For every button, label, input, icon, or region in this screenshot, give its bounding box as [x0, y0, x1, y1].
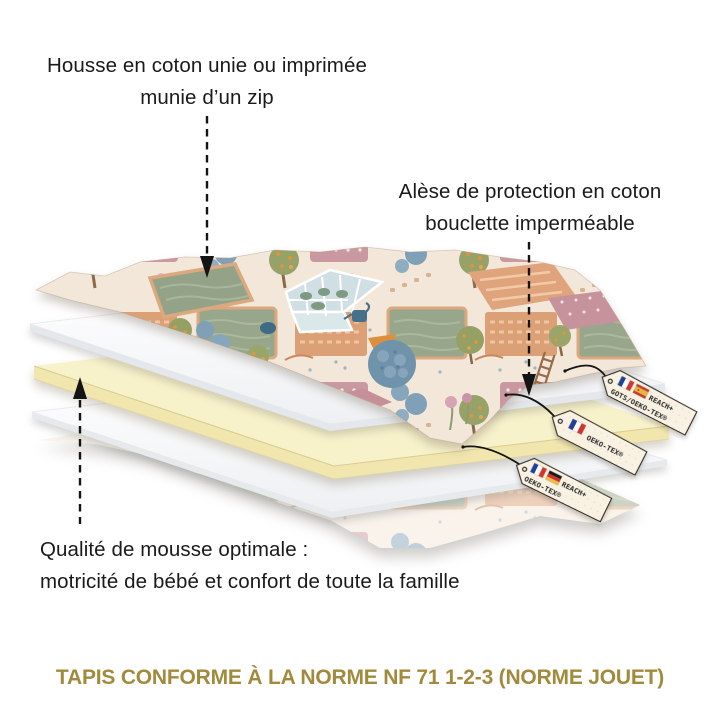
- infographic: REACH+ GOTS/OEKO-TEX® OEKO-TEX®: [0, 0, 720, 720]
- label-housse: Housse en coton unie ou imprimée munie d…: [27, 50, 387, 114]
- label-mousse: Qualité de mousse optimale : motricité d…: [40, 534, 520, 598]
- arrow-mousse: [73, 377, 87, 524]
- label-housse-line-1: Housse en coton unie ou imprimée: [27, 50, 387, 82]
- label-mousse-line-2: motricité de bébé et confort de toute la…: [40, 566, 520, 598]
- arrow-housse: [200, 116, 214, 278]
- label-alese: Alèse de protection en coton bouclette i…: [375, 176, 685, 240]
- label-housse-line-2: munie d’un zip: [27, 82, 387, 114]
- label-alese-line-1: Alèse de protection en coton: [375, 176, 685, 208]
- norm-compliance-title: TAPIS CONFORME À LA NORME NF 71 1-2-3 (N…: [0, 666, 720, 690]
- label-alese-line-2: bouclette imperméable: [375, 208, 685, 240]
- label-mousse-line-1: Qualité de mousse optimale :: [40, 534, 520, 566]
